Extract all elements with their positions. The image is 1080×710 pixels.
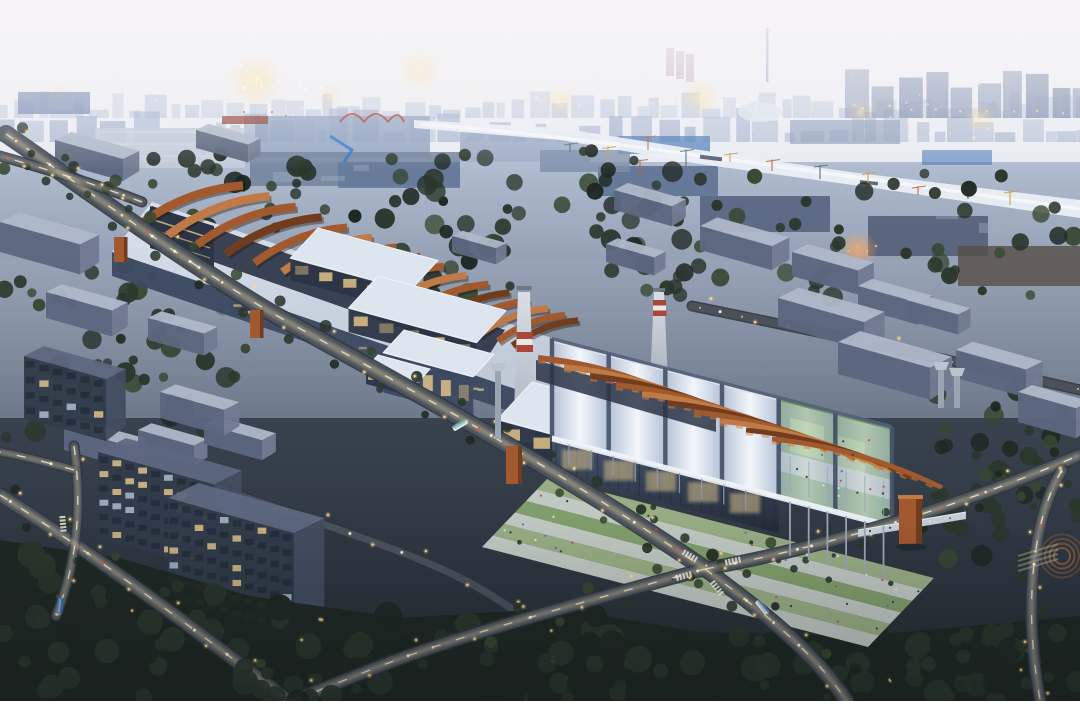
street-tree bbox=[466, 436, 475, 445]
tree bbox=[216, 367, 237, 388]
street-tree bbox=[144, 211, 156, 223]
chimney-stripe bbox=[517, 339, 533, 345]
tree bbox=[348, 210, 361, 223]
tree bbox=[495, 219, 511, 235]
street-tree bbox=[275, 296, 286, 307]
street-tree bbox=[125, 205, 133, 213]
car bbox=[121, 214, 124, 217]
street-tree bbox=[231, 269, 242, 280]
street-tree bbox=[150, 251, 160, 261]
person bbox=[856, 492, 858, 494]
street-tree bbox=[458, 398, 467, 407]
lit-interior bbox=[319, 272, 332, 281]
dock-light bbox=[848, 250, 851, 253]
window bbox=[67, 373, 76, 380]
person bbox=[838, 495, 840, 497]
person bbox=[842, 440, 844, 442]
atmospheric-haze bbox=[0, 0, 1080, 170]
tree bbox=[1049, 202, 1061, 214]
person bbox=[868, 439, 870, 441]
corten-tower bbox=[250, 310, 260, 338]
car bbox=[938, 507, 941, 510]
window bbox=[182, 506, 191, 512]
interior-glow bbox=[604, 461, 634, 481]
window bbox=[94, 427, 103, 434]
street-tree bbox=[238, 308, 248, 318]
tree bbox=[159, 373, 168, 382]
person bbox=[882, 492, 884, 494]
person bbox=[869, 488, 871, 490]
street-tree bbox=[367, 347, 376, 356]
corten-tower bbox=[506, 446, 518, 484]
tree bbox=[830, 241, 842, 253]
corten-tower bbox=[114, 237, 124, 262]
tree bbox=[389, 195, 401, 207]
lit-window bbox=[233, 304, 242, 307]
window bbox=[53, 384, 62, 391]
tree bbox=[694, 173, 707, 186]
tree bbox=[801, 196, 812, 207]
tree bbox=[1020, 447, 1038, 465]
tree bbox=[505, 281, 514, 290]
tree bbox=[747, 169, 762, 184]
street-lamp bbox=[1077, 388, 1079, 390]
chimney-cap bbox=[517, 286, 532, 290]
tree bbox=[320, 204, 330, 214]
tree bbox=[887, 178, 899, 190]
tree bbox=[652, 180, 662, 190]
tree bbox=[855, 182, 873, 200]
tree bbox=[1024, 426, 1034, 436]
person bbox=[822, 484, 824, 486]
window bbox=[94, 380, 103, 387]
tree bbox=[640, 284, 653, 297]
window bbox=[112, 460, 121, 466]
lit-interior bbox=[379, 324, 393, 334]
tree bbox=[691, 258, 706, 273]
window bbox=[80, 376, 89, 383]
tree bbox=[971, 433, 989, 451]
car bbox=[719, 310, 722, 313]
window bbox=[177, 478, 186, 484]
car bbox=[122, 194, 125, 197]
factory-block bbox=[958, 246, 1080, 286]
window bbox=[138, 468, 147, 474]
person bbox=[540, 495, 542, 497]
street-lamp bbox=[414, 375, 416, 377]
street-lamp bbox=[601, 509, 603, 511]
street-tree bbox=[330, 359, 339, 368]
window bbox=[80, 407, 89, 414]
chimney-stripe bbox=[517, 345, 534, 352]
street-lamp bbox=[741, 316, 743, 318]
car bbox=[221, 281, 224, 284]
window bbox=[94, 411, 103, 418]
street-lamp bbox=[443, 416, 445, 418]
window bbox=[80, 423, 89, 430]
window bbox=[26, 377, 35, 384]
tree bbox=[995, 169, 1008, 182]
street-tree bbox=[84, 191, 92, 199]
roof-rib bbox=[663, 367, 667, 471]
person bbox=[837, 487, 839, 489]
window bbox=[67, 388, 76, 395]
car bbox=[189, 260, 192, 263]
street-tree bbox=[1049, 447, 1059, 457]
tree bbox=[241, 344, 251, 354]
dock-light bbox=[857, 245, 860, 248]
corten-tower-side bbox=[260, 310, 264, 338]
dusk-vignette bbox=[0, 512, 1080, 702]
tree bbox=[1, 432, 12, 443]
person bbox=[821, 454, 823, 456]
window bbox=[151, 500, 160, 506]
street-lamp bbox=[127, 227, 129, 229]
tree bbox=[554, 197, 571, 214]
window bbox=[112, 503, 121, 509]
street-lamp bbox=[965, 503, 967, 505]
tree bbox=[920, 169, 930, 179]
tree bbox=[711, 269, 729, 287]
tree bbox=[393, 169, 409, 185]
window bbox=[112, 475, 121, 481]
person bbox=[796, 468, 798, 470]
chimney-stripe bbox=[653, 311, 667, 317]
interior-glow bbox=[688, 482, 718, 502]
architectural-rendering bbox=[0, 0, 1080, 710]
tree bbox=[148, 179, 158, 189]
street-lamp bbox=[19, 492, 21, 494]
window bbox=[67, 404, 76, 411]
window bbox=[125, 478, 134, 484]
tree bbox=[971, 450, 981, 460]
street-tree bbox=[376, 386, 383, 393]
roof-rib bbox=[776, 397, 780, 501]
window bbox=[125, 464, 134, 470]
dock-light bbox=[866, 250, 869, 253]
roof-rib bbox=[833, 411, 837, 515]
warehouse-shed bbox=[321, 176, 345, 181]
street-lamp bbox=[898, 337, 900, 339]
tree bbox=[25, 420, 46, 441]
street-lamp bbox=[122, 197, 124, 199]
vault-bay bbox=[837, 416, 890, 525]
window bbox=[164, 489, 173, 495]
car bbox=[490, 434, 493, 437]
street-tree bbox=[284, 334, 294, 344]
tree bbox=[129, 356, 138, 365]
window bbox=[39, 380, 48, 387]
tree bbox=[980, 469, 993, 482]
car bbox=[173, 250, 176, 253]
lit-interior bbox=[295, 266, 308, 275]
car bbox=[9, 500, 12, 503]
tree bbox=[957, 203, 973, 219]
window bbox=[53, 400, 62, 407]
car bbox=[145, 231, 148, 234]
street-tree bbox=[975, 503, 984, 512]
street-lamp bbox=[333, 330, 335, 332]
window bbox=[164, 475, 173, 481]
tree bbox=[1032, 205, 1049, 222]
street-lamp bbox=[699, 307, 701, 309]
tree bbox=[1012, 233, 1029, 250]
tree bbox=[928, 257, 943, 272]
person bbox=[883, 486, 885, 488]
window bbox=[151, 486, 160, 492]
tree bbox=[604, 263, 619, 278]
tree bbox=[776, 223, 785, 232]
window bbox=[138, 496, 147, 502]
car bbox=[477, 427, 480, 430]
lit-interior bbox=[354, 317, 368, 327]
rendering-canvas bbox=[0, 0, 1080, 710]
window bbox=[100, 500, 109, 506]
street-lamp bbox=[254, 285, 256, 287]
tree bbox=[1043, 435, 1058, 450]
window bbox=[67, 419, 76, 426]
water-tower-shaft bbox=[938, 370, 944, 408]
window bbox=[53, 369, 62, 376]
lit-window bbox=[478, 388, 484, 391]
tree bbox=[402, 188, 419, 205]
window bbox=[125, 493, 134, 499]
tree bbox=[375, 208, 395, 228]
chimney-cap bbox=[653, 288, 665, 292]
tree bbox=[673, 288, 687, 302]
tree bbox=[961, 181, 977, 197]
person bbox=[566, 500, 568, 502]
warehouse-shed bbox=[979, 223, 1003, 233]
corten-tower-top bbox=[898, 495, 923, 499]
lit-window bbox=[359, 347, 367, 350]
street-lamp bbox=[710, 298, 712, 300]
tree bbox=[673, 271, 685, 283]
street-tree bbox=[421, 411, 429, 419]
tree bbox=[116, 334, 126, 344]
street-tree bbox=[1030, 503, 1037, 510]
street-lamp bbox=[82, 458, 84, 460]
tree bbox=[587, 183, 604, 200]
tree bbox=[27, 288, 36, 297]
window bbox=[26, 361, 35, 368]
car bbox=[50, 462, 53, 465]
tree bbox=[457, 215, 475, 233]
street-tree bbox=[66, 193, 73, 200]
street-tree bbox=[42, 177, 51, 186]
person bbox=[840, 480, 842, 482]
tree bbox=[266, 181, 277, 192]
street-lamp bbox=[1007, 470, 1009, 472]
window bbox=[26, 408, 35, 415]
corten-tower-side bbox=[518, 446, 522, 484]
tree bbox=[33, 299, 46, 312]
tree bbox=[503, 204, 513, 214]
car bbox=[198, 266, 201, 269]
tree bbox=[292, 179, 301, 188]
person bbox=[806, 476, 808, 478]
street-tree bbox=[1064, 480, 1072, 488]
street-tree bbox=[1030, 481, 1041, 492]
vault-bay bbox=[724, 387, 777, 496]
person bbox=[852, 454, 854, 456]
tree bbox=[929, 187, 941, 199]
street-tree bbox=[108, 222, 117, 231]
car bbox=[151, 235, 154, 238]
dock-light bbox=[875, 245, 878, 248]
tree bbox=[1002, 441, 1018, 457]
street-lamp bbox=[177, 236, 179, 238]
tree bbox=[711, 200, 722, 211]
tree bbox=[439, 225, 453, 239]
tree bbox=[990, 401, 1000, 411]
street-tree bbox=[591, 476, 602, 487]
corten-tower-side bbox=[124, 237, 128, 262]
street-tree bbox=[548, 451, 556, 459]
street-lamp bbox=[101, 184, 103, 186]
tree bbox=[994, 247, 1005, 258]
person bbox=[841, 470, 843, 472]
street-tree bbox=[937, 488, 949, 500]
tree bbox=[290, 188, 301, 199]
water-tower-shaft bbox=[495, 371, 501, 439]
window bbox=[94, 396, 103, 403]
vault-bay bbox=[781, 401, 834, 510]
tree bbox=[978, 286, 987, 295]
window bbox=[138, 482, 147, 488]
roof-rib bbox=[720, 382, 724, 486]
tree bbox=[1049, 227, 1067, 245]
tree bbox=[939, 422, 951, 434]
window bbox=[39, 411, 48, 418]
lit-interior bbox=[441, 380, 451, 396]
terrace-tree bbox=[650, 504, 656, 510]
street-lamp bbox=[203, 278, 205, 280]
street-tree bbox=[995, 470, 1003, 478]
tree bbox=[599, 174, 612, 187]
street-tree bbox=[110, 175, 122, 187]
window bbox=[39, 396, 48, 403]
roof-rib bbox=[550, 338, 554, 442]
window bbox=[112, 489, 121, 495]
tree bbox=[596, 212, 606, 222]
window bbox=[100, 471, 109, 477]
window bbox=[26, 392, 35, 399]
street-lamp bbox=[283, 327, 285, 329]
tree bbox=[1016, 492, 1026, 502]
tree bbox=[900, 248, 911, 259]
street-lamp bbox=[51, 174, 53, 176]
street-lamp bbox=[363, 371, 365, 373]
window bbox=[53, 415, 62, 422]
car bbox=[1060, 470, 1063, 473]
bottom-margin bbox=[0, 701, 1080, 710]
window bbox=[151, 471, 160, 477]
street-lamp bbox=[573, 467, 575, 469]
street-lamp bbox=[1060, 484, 1062, 486]
person bbox=[838, 454, 840, 456]
tree bbox=[425, 181, 446, 202]
street-tree bbox=[503, 424, 512, 433]
street-tree bbox=[189, 242, 197, 250]
street-tree bbox=[320, 320, 332, 332]
street-lamp bbox=[754, 321, 756, 323]
chimney-stripe bbox=[653, 306, 666, 311]
tree bbox=[1026, 290, 1036, 300]
window bbox=[100, 485, 109, 491]
street-lamp bbox=[523, 462, 525, 464]
chimney-stripe bbox=[517, 332, 533, 339]
tree bbox=[139, 374, 150, 385]
tree bbox=[950, 265, 960, 275]
window bbox=[39, 365, 48, 372]
water-tower-shaft bbox=[954, 376, 960, 408]
lit-interior bbox=[534, 438, 551, 449]
window bbox=[170, 503, 179, 509]
tree bbox=[834, 224, 844, 234]
interior-glow bbox=[730, 493, 760, 513]
tree bbox=[506, 174, 523, 191]
street-tree bbox=[555, 488, 564, 497]
window bbox=[100, 457, 109, 463]
tree bbox=[512, 206, 526, 220]
tree bbox=[934, 440, 948, 454]
tree bbox=[671, 229, 692, 250]
window bbox=[80, 392, 89, 399]
car bbox=[984, 491, 987, 494]
lit-interior bbox=[343, 279, 356, 288]
tree bbox=[14, 275, 27, 288]
chimney-stripe bbox=[653, 300, 666, 306]
warehouse-shed bbox=[936, 208, 958, 219]
interior-glow bbox=[646, 471, 676, 491]
tree bbox=[789, 218, 802, 231]
